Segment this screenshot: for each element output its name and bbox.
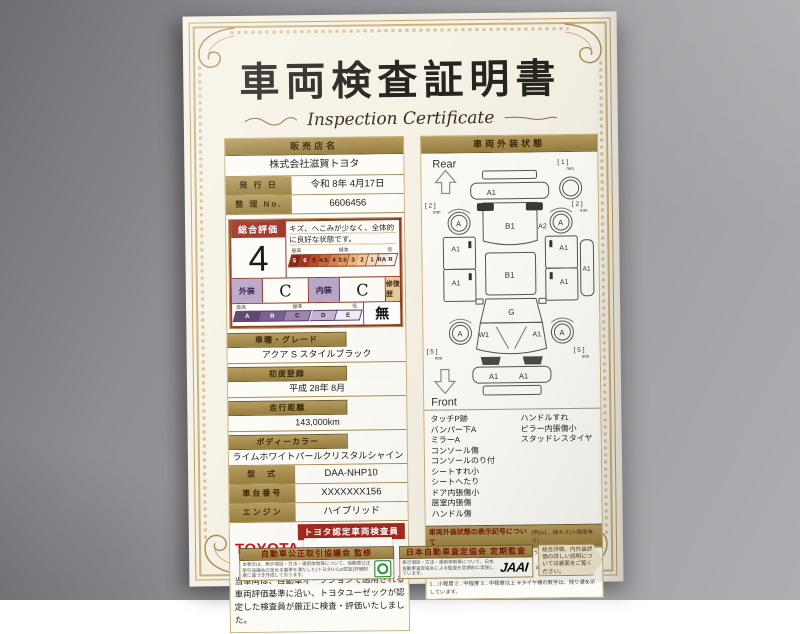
legend-line: 1…小程度 2…中程度 3…中程度以上 ※タイヤ横の数字は、残り溝を示しています… — [429, 580, 599, 597]
model-grade-value: アクア S スタイルブラック — [228, 346, 406, 364]
ref-no-value: 6606456 — [292, 194, 404, 213]
rating-comment: キズ、へこみが少なく、全体的に良好な状態です。 — [289, 222, 396, 247]
jaai-logo: JAAI — [500, 559, 531, 574]
right-rear-mark: A2 — [538, 223, 547, 230]
front-bumper-left-mark: A1 — [489, 372, 498, 381]
door-mark: A1 — [559, 245, 568, 252]
footer: 自動車公正取引協議会 監修 本表示は、表示項目・方法・運用体制等について、自動車… — [239, 544, 603, 580]
mileage-label: 走行距離 — [228, 400, 347, 416]
corner-flourish-icon — [563, 19, 610, 66]
legend-example: (例)A1…線キズ(小程度有り) — [531, 528, 599, 545]
rating-scale: S 6 5 4.5 4 3.5 3 2 1 RA R — [289, 253, 396, 267]
mm-unit: mm — [580, 208, 588, 213]
front-bumper-right-mark: A1 — [519, 371, 528, 380]
condition-item: タッチP跡 — [430, 414, 494, 425]
grade-cell: D — [309, 310, 337, 321]
chassis-no-value: XXXXXXX156 — [295, 483, 407, 502]
fair-trade-badge: 自動車公正取引協議会 監修 本表示は、表示項目・方法・運用体制等について、自動車… — [239, 546, 394, 580]
rear-bumper-mark: A1 — [487, 188, 496, 197]
front-label: Front — [431, 396, 457, 408]
condition-item: ドア内張傷小 — [431, 487, 495, 498]
rear-label: Rear — [432, 158, 456, 170]
issue-date-value: 令和 8年 4月17日 — [291, 175, 403, 194]
issue-date-row: 発 行 日 令和 8年 4月17日 — [225, 175, 403, 196]
ref-no-label: 整 理 No. — [226, 195, 292, 214]
condition-item: バンパー下A — [431, 424, 495, 435]
condition-item: スタッドレスタイヤ — [521, 434, 593, 445]
interior-label: 内装 — [309, 278, 340, 302]
engine-label: エンジン — [229, 503, 295, 522]
hatch-mark: B1 — [505, 222, 515, 231]
dealer-header: 販売店名 — [225, 137, 403, 156]
left-front-mark: W1 — [478, 332, 489, 339]
exterior-grade: C — [263, 278, 309, 303]
overall-rating-box: 総合評価 4 キズ、へこみが少なく、全体的に良好な状態です。 最高 標準 低 S… — [229, 218, 402, 328]
condition-item: コンソールのり付 — [431, 456, 495, 467]
grade-scale: A B C D E — [234, 310, 361, 323]
mm-unit: mm — [582, 354, 590, 359]
wheel-mark: A — [558, 218, 563, 227]
exterior-condition-column: 車両外装状態 Rear [ 1 ] mm A1 — [420, 134, 604, 600]
door-mark: A1 — [560, 279, 569, 286]
overall-rating-label: 総合評価 — [231, 221, 285, 238]
condition-item: ハンドル傷 — [432, 508, 496, 519]
corner-flourish-icon — [191, 24, 238, 71]
condition-item: コンソール傷 — [431, 445, 495, 456]
condition-list-left: タッチP跡 バンパー下A ミラーA コンソール傷 コンソールのり付 シートすれ小… — [430, 414, 495, 520]
car-diagram-panel: Rear [ 1 ] mm A1 B1 — [421, 152, 600, 410]
engine-row: エンジン ハイブリッド — [229, 502, 407, 523]
model-code-label: 型 式 — [229, 465, 295, 484]
chassis-no-label: 車台番号 — [229, 484, 295, 503]
door-mark: A1 — [451, 246, 460, 253]
wheel-mark: A — [559, 328, 564, 337]
mileage-value: 143,000km — [228, 414, 406, 432]
ref-no-row: 整 理 No. 6606456 — [226, 194, 404, 215]
engine-value: ハイブリッド — [295, 502, 407, 521]
issue-date-label: 発 行 日 — [225, 176, 291, 195]
grade-cell: A — [233, 311, 262, 322]
overall-rating-score: 4 — [231, 237, 286, 280]
repair-history-value: 無 — [364, 302, 400, 324]
model-code-row: 型 式 DAA-NHP10 — [229, 464, 407, 485]
windshield-mark: G — [508, 308, 514, 317]
roof-mark: B1 — [505, 271, 515, 280]
condition-item: シートすれ小 — [431, 466, 495, 477]
grade-cell: E — [334, 309, 362, 320]
rear-arrow-icon — [435, 170, 455, 193]
fair-trade-text: 本表示は、表示項目・方法・運用体制等について、自動車公正取引協議会の定める基準を… — [242, 561, 371, 579]
certificate-paper: 車両検査証明書 Inspection Certificate 販売店名 株式会社… — [183, 11, 624, 586]
front-arrow-icon — [435, 369, 455, 393]
model-grade-label: 車種・グレード — [227, 332, 346, 348]
photo-background: 車両検査証明書 Inspection Certificate 販売店名 株式会社… — [0, 0, 800, 600]
jaai-text: 表示項目・方法・運用体制等について、日本自動車査定協会による監査を定期的に実施し… — [402, 559, 498, 577]
sill-mark: A1 — [583, 266, 591, 273]
condition-list-right: ハンドルすれ ピラー内張傷小 スタッドレスタイヤ — [520, 413, 593, 519]
interior-grade: C — [340, 277, 386, 302]
repair-history-label: 修復歴 — [386, 277, 400, 301]
condition-item: シートへたり — [431, 477, 495, 488]
model-code-value: DAA-NHP10 — [295, 464, 407, 483]
green-seal-icon — [374, 560, 391, 577]
wheel-mark: A — [457, 329, 462, 338]
car-diagram: Rear [ 1 ] mm A1 B1 — [422, 152, 599, 410]
condition-list: タッチP跡 バンパー下A ミラーA コンソール傷 コンソールのり付 シートすれ小… — [424, 408, 601, 526]
back-side-note: 総合評価、内外装評価の詳しい説明については裏面をご覧ください。 — [538, 544, 603, 577]
wheel-mark: A — [456, 219, 461, 228]
body-color-label: ボディーカラー — [229, 434, 348, 450]
mm-unit: mm — [566, 166, 574, 171]
mm-unit: mm — [433, 210, 441, 215]
condition-item: 居室内張傷 — [431, 498, 495, 509]
first-registration-label: 初度登録 — [228, 366, 347, 382]
condition-item: ミラーA — [431, 435, 495, 446]
right-front-mark: A1 — [532, 331, 541, 338]
scale-cell: R — [385, 253, 398, 266]
chassis-no-row: 車台番号 XXXXXXX156 — [229, 483, 407, 504]
first-registration-value: 平成 28年 8月 — [228, 380, 406, 398]
dealer-name: 株式会社滋賀トヨタ — [225, 154, 403, 177]
exterior-header: 車両外装状態 — [421, 135, 597, 154]
jaai-badge: 日本自動車査定協会 定期監査 表示項目・方法・運用体制等について、日本自動車査定… — [399, 544, 533, 578]
door-mark: A1 — [452, 280, 461, 287]
exterior-label: 外装 — [232, 279, 263, 303]
mm-unit: mm — [435, 356, 443, 361]
grade-cell: C — [284, 310, 312, 321]
